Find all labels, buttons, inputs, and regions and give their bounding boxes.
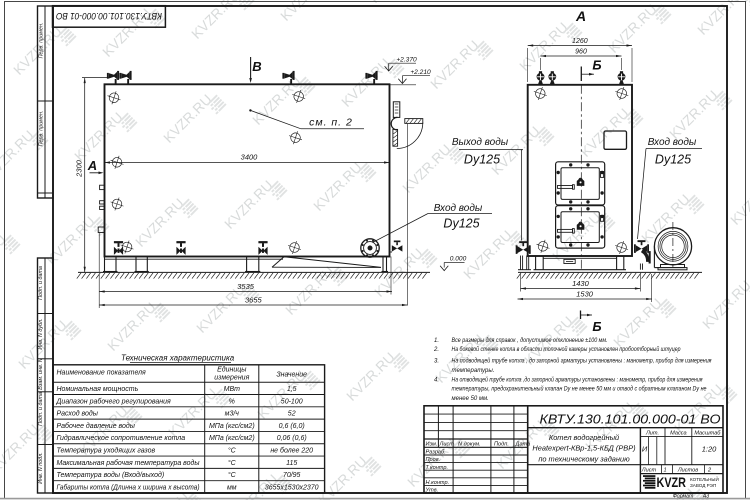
svg-text:Инв. N дубл.: Инв. N дубл.: [38, 318, 44, 349]
svg-text:4.: 4.: [434, 378, 439, 384]
svg-text:Диапазон рабочего регулировани: Диапазон рабочего регулирования: [56, 397, 172, 405]
svg-text:В: В: [252, 59, 261, 74]
svg-text:3655х1530х2370: 3655х1530х2370: [265, 484, 319, 491]
svg-text:Все размеры для справок , допу: Все размеры для справок , допустимое отк…: [452, 338, 608, 344]
svg-text:960: 960: [575, 49, 587, 56]
svg-text:А: А: [575, 8, 586, 24]
svg-text:Наименование показателя: Наименование показателя: [57, 369, 147, 376]
svg-text:КВТУ.130.101.00.000-01 ВО: КВТУ.130.101.00.000-01 ВО: [540, 412, 721, 427]
svg-text:1,5: 1,5: [287, 386, 297, 393]
svg-text:Heatexpert-КВр-1,5-КБД (РВР): Heatexpert-КВр-1,5-КБД (РВР): [532, 444, 636, 453]
svg-text:Изм.: Изм.: [426, 441, 438, 447]
svg-text:3400: 3400: [241, 153, 259, 162]
svg-text:Вход воды: Вход воды: [434, 203, 483, 214]
svg-text:1.: 1.: [434, 338, 439, 344]
svg-text:Листов: Листов: [677, 468, 698, 474]
svg-text:Выход воды: Выход воды: [452, 137, 509, 148]
svg-text:температуры, предохранительный: температуры, предохранительный клапан Dy…: [452, 386, 708, 393]
svg-text:Утв.: Утв.: [425, 488, 439, 494]
svg-text:по техническому заданию: по техническому заданию: [538, 454, 630, 463]
svg-text:Dy125: Dy125: [464, 153, 500, 167]
svg-text:Масса: Масса: [670, 430, 687, 436]
svg-text:Значение: Значение: [276, 372, 307, 379]
svg-text:1530: 1530: [576, 290, 594, 299]
svg-text:Температура воды (Вход/выход): Температура воды (Вход/выход): [57, 471, 165, 479]
svg-text:Инв. N подл.: Инв. N подл.: [38, 452, 44, 484]
svg-text:Dy125: Dy125: [443, 217, 479, 231]
svg-text:1430: 1430: [572, 279, 590, 288]
svg-text:0,6 (6,0): 0,6 (6,0): [279, 423, 305, 430]
svg-text:3535: 3535: [237, 282, 255, 291]
svg-text:3655: 3655: [245, 296, 263, 305]
svg-text:не более 220: не более 220: [270, 447, 313, 455]
svg-text:Рабочее давление воды: Рабочее давление воды: [57, 422, 136, 430]
svg-text:МВт: МВт: [224, 386, 241, 393]
svg-text:МПа (кгс/см2): МПа (кгс/см2): [209, 435, 255, 442]
svg-text:Расход воды: Расход воды: [57, 410, 99, 418]
svg-text:Перв. примен.: Перв. примен.: [38, 111, 44, 147]
svg-text:52: 52: [288, 411, 296, 418]
svg-text:А: А: [87, 158, 97, 173]
svg-text:Подп. и дата: Подп. и дата: [38, 392, 44, 426]
svg-text:1260: 1260: [572, 38, 588, 45]
svg-text:Б: Б: [592, 58, 601, 73]
svg-text:Подп.: Подп.: [494, 441, 509, 447]
svg-text:Лист: Лист: [641, 468, 657, 474]
svg-text:м3/ч: м3/ч: [225, 411, 240, 418]
svg-text:Техническая характеристика: Техническая характеристика: [121, 353, 235, 362]
svg-text:Масштаб: Масштаб: [694, 430, 721, 436]
svg-text:КОТЕЛЬНЫЙ: КОТЕЛЬНЫЙ: [690, 475, 719, 482]
svg-text:Формат: Формат: [673, 494, 694, 500]
svg-text:Номинальная мощность: Номинальная мощность: [57, 386, 139, 393]
svg-text:Единицы: Единицы: [217, 366, 247, 374]
svg-text:Подп. и дата: Подп. и дата: [38, 266, 44, 300]
svg-text:Дата: Дата: [515, 441, 531, 447]
svg-text:Лист: Лист: [439, 441, 455, 447]
svg-text:Перв. примен.: Перв. примен.: [38, 23, 44, 59]
svg-text:°С: °С: [228, 471, 237, 479]
svg-text:115: 115: [286, 460, 297, 467]
svg-text:Вход воды: Вход воды: [648, 137, 697, 148]
svg-text:измерения: измерения: [214, 375, 249, 382]
svg-text:50-100: 50-100: [281, 398, 303, 405]
svg-text:МПа (кгс/см2): МПа (кгс/см2): [209, 423, 255, 430]
svg-text:2.: 2.: [433, 347, 439, 353]
svg-text:А3: А3: [702, 494, 709, 500]
svg-text:Взам. инв. N: Взам. инв. N: [38, 358, 44, 390]
svg-text:Максимальная рабочая температу: Максимальная рабочая температура воды: [57, 459, 201, 467]
svg-text:Разраб.: Разраб.: [426, 450, 446, 456]
svg-text:см. п. 2: см. п. 2: [309, 117, 353, 129]
svg-text:+2.370: +2.370: [396, 57, 417, 64]
svg-text:Т.контр.: Т.контр.: [426, 465, 449, 471]
svg-text:1:20: 1:20: [702, 445, 717, 454]
svg-text:°С: °С: [228, 459, 237, 467]
svg-text:КВТУ.130.101.00.000-01 ВО: КВТУ.130.101.00.000-01 ВО: [55, 10, 162, 21]
svg-text:На отводящей трубе котла ,до з: На отводящей трубе котла ,до запорной ар…: [452, 377, 704, 384]
svg-text:И: И: [642, 445, 648, 454]
svg-text:+2.210: +2.210: [410, 69, 431, 76]
svg-text:N докум.: N докум.: [458, 441, 481, 447]
svg-text:Габариты котла (Длинна х ширин: Габариты котла (Длинна х ширина х высота…: [57, 483, 200, 491]
svg-text:0,06 (0,6): 0,06 (0,6): [277, 435, 307, 442]
svg-text:температуры.: температуры.: [452, 368, 495, 374]
svg-text:Dy125: Dy125: [655, 153, 691, 167]
svg-text:Лит.: Лит.: [645, 430, 659, 436]
svg-text:Н.контр.: Н.контр.: [426, 480, 450, 486]
svg-text:ЗАВОД РЭП: ЗАВОД РЭП: [690, 483, 716, 488]
svg-text:менее 50 мм.: менее 50 мм.: [452, 396, 489, 402]
svg-text:Пров.: Пров.: [426, 457, 441, 463]
svg-text:70/95: 70/95: [283, 472, 301, 479]
svg-text:%: %: [229, 398, 235, 405]
svg-text:Гидравлическое сопротивление к: Гидравлическое сопротивление котла: [57, 434, 186, 442]
svg-text:1: 1: [663, 468, 666, 474]
svg-text:°С: °С: [228, 447, 237, 455]
svg-text:2300: 2300: [75, 159, 84, 178]
svg-text:На подводящей трубе котла ,: На подводящей трубе котла , до запорной …: [452, 357, 713, 364]
svg-text:Температура уходящих газов: Температура уходящих газов: [57, 447, 156, 455]
svg-text:KVZR: KVZR: [657, 474, 687, 490]
svg-text:3.: 3.: [434, 358, 439, 364]
svg-text:Б: Б: [592, 319, 601, 334]
svg-text:мм: мм: [227, 484, 237, 491]
svg-text:Котел водогрейный: Котел водогрейный: [549, 433, 619, 442]
svg-text:0.000: 0.000: [450, 256, 467, 263]
svg-text:На боковой стенке котла в обла: На боковой стенке котла в области топочн…: [452, 346, 682, 353]
